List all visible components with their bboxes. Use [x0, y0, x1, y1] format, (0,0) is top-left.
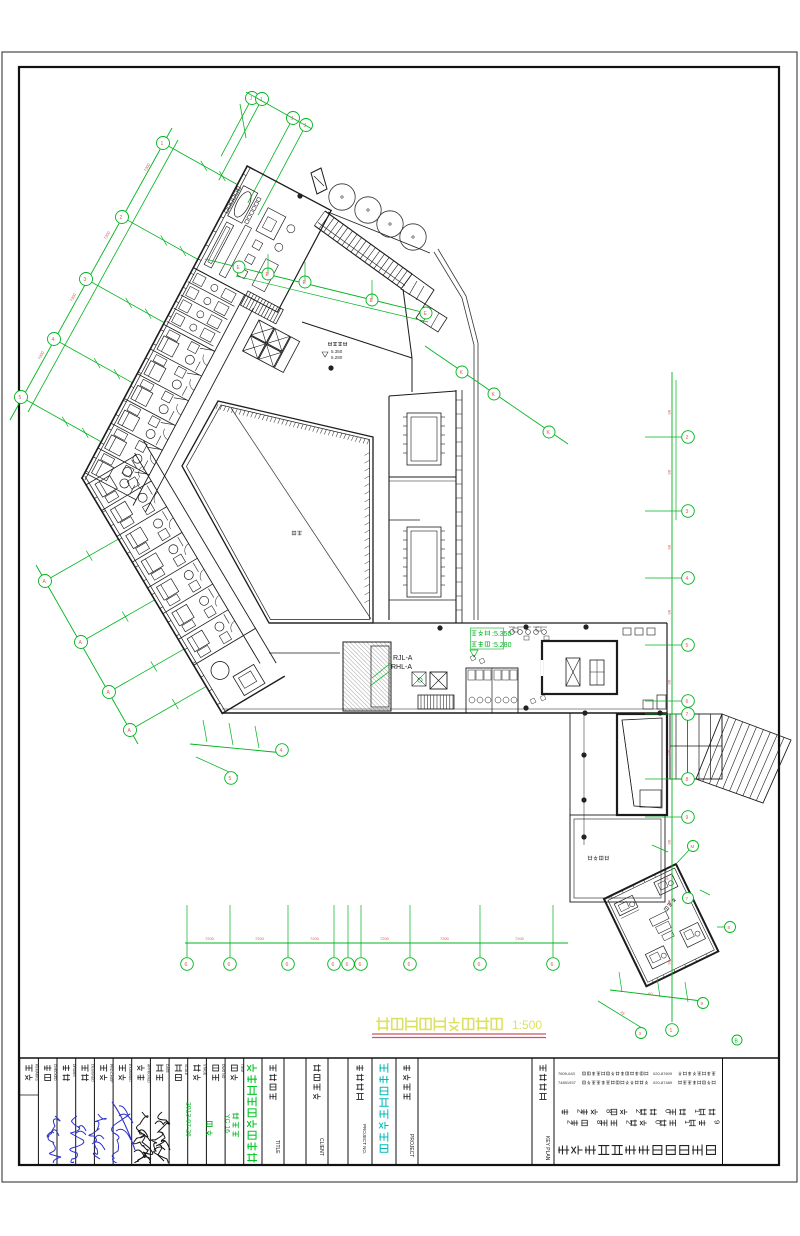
svg-text:EXAMINED: EXAMINED	[128, 1064, 132, 1082]
svg-text:3: 3	[686, 509, 689, 515]
svg-text:6: 6	[185, 962, 188, 968]
svg-text:TITLE: TITLE	[274, 1140, 280, 1154]
svg-text:7200: 7200	[255, 936, 265, 941]
svg-text:CHECKED: CHECKED	[53, 1064, 57, 1081]
svg-text:020-87609: 020-87609	[653, 1071, 673, 1076]
svg-text:2: 2	[120, 215, 123, 221]
svg-text:5.280: 5.280	[331, 355, 343, 360]
svg-text:6: 6	[359, 962, 362, 968]
svg-text:7: 7	[686, 712, 689, 718]
svg-text:020-87489: 020-87489	[653, 1080, 673, 1085]
svg-text:6: 6	[686, 699, 689, 705]
svg-text:86: 86	[667, 545, 672, 550]
svg-text:PROJECT NO.: PROJECT NO.	[362, 1124, 367, 1154]
svg-text:2013-07-26: 2013-07-26	[185, 1102, 192, 1137]
svg-text:3: 3	[84, 277, 87, 283]
svg-text:8: 8	[686, 777, 689, 783]
svg-text:2: 2	[575, 1109, 584, 1113]
svg-text:ITEM: ITEM	[240, 1064, 244, 1072]
svg-text::5.280: :5.280	[492, 642, 512, 649]
svg-text:RHL-A: RHL-A	[391, 664, 412, 671]
svg-text:6: 6	[408, 962, 411, 968]
svg-text:DESIGNED: DESIGNED	[91, 1064, 95, 1082]
svg-text:86: 86	[667, 750, 672, 755]
svg-text:4: 4	[686, 576, 689, 582]
svg-text:5: 5	[229, 776, 232, 782]
svg-text:86: 86	[667, 840, 672, 845]
svg-text:0: 0	[664, 1109, 673, 1113]
svg-text:DRAWN: DRAWN	[72, 1064, 76, 1077]
svg-text:4: 4	[280, 748, 283, 754]
svg-text:1: 1	[161, 141, 164, 147]
svg-text:86: 86	[667, 410, 672, 415]
svg-text:7200: 7200	[310, 936, 320, 941]
svg-text:CLIENT: CLIENT	[318, 1138, 324, 1156]
svg-text:74891937: 74891937	[558, 1080, 577, 1085]
svg-text:DATE: DATE	[165, 1064, 169, 1074]
svg-text:PRO CHIEF: PRO CHIEF	[109, 1064, 113, 1082]
svg-text:6: 6	[286, 962, 289, 968]
svg-text:RJL-A: RJL-A	[393, 655, 413, 662]
svg-text:5.350: 5.350	[331, 349, 343, 354]
svg-text:PROJECT: PROJECT	[408, 1134, 414, 1157]
svg-text:YC 16: YC 16	[224, 1114, 231, 1133]
svg-text:4: 4	[52, 337, 55, 343]
svg-text:86: 86	[667, 470, 672, 475]
svg-text:SCALE: SCALE	[184, 1064, 188, 1076]
svg-text:7200: 7200	[440, 936, 450, 941]
svg-text:5: 5	[686, 643, 689, 649]
svg-text:6: 6	[228, 962, 231, 968]
svg-text:APPROVED: APPROVED	[147, 1064, 151, 1083]
svg-text:1: 1	[670, 1028, 673, 1034]
svg-text::5.350: :5.350	[492, 631, 512, 638]
svg-text:86: 86	[667, 900, 672, 905]
svg-text:DWG NO: DWG NO	[221, 1064, 225, 1079]
svg-text:5: 5	[19, 395, 22, 401]
svg-text:7609-643: 7609-643	[558, 1071, 576, 1076]
svg-text:STAGE: STAGE	[203, 1064, 207, 1076]
svg-text:8: 8	[595, 1120, 604, 1124]
svg-text:KEY PLAN: KEY PLAN	[544, 1136, 550, 1161]
svg-text:9: 9	[686, 815, 689, 821]
svg-text:9: 9	[713, 1120, 722, 1124]
svg-text:REMARKS: REMARKS	[35, 1064, 39, 1082]
svg-text:2: 2	[686, 435, 689, 441]
svg-text:2: 2	[566, 1120, 575, 1124]
svg-text:7200: 7200	[515, 936, 525, 941]
svg-text:86: 86	[667, 960, 672, 965]
svg-text:6: 6	[332, 962, 335, 968]
svg-text:86: 86	[667, 610, 672, 615]
svg-text:7200: 7200	[380, 936, 390, 941]
svg-text:6: 6	[551, 962, 554, 968]
svg-text:1:500: 1:500	[512, 1018, 542, 1032]
svg-text:6: 6	[346, 962, 349, 968]
svg-text:7200: 7200	[205, 936, 215, 941]
svg-text:86: 86	[667, 680, 672, 685]
svg-text:6: 6	[478, 962, 481, 968]
svg-text:M: M	[691, 844, 695, 849]
svg-text:39: 39	[664, 876, 669, 881]
